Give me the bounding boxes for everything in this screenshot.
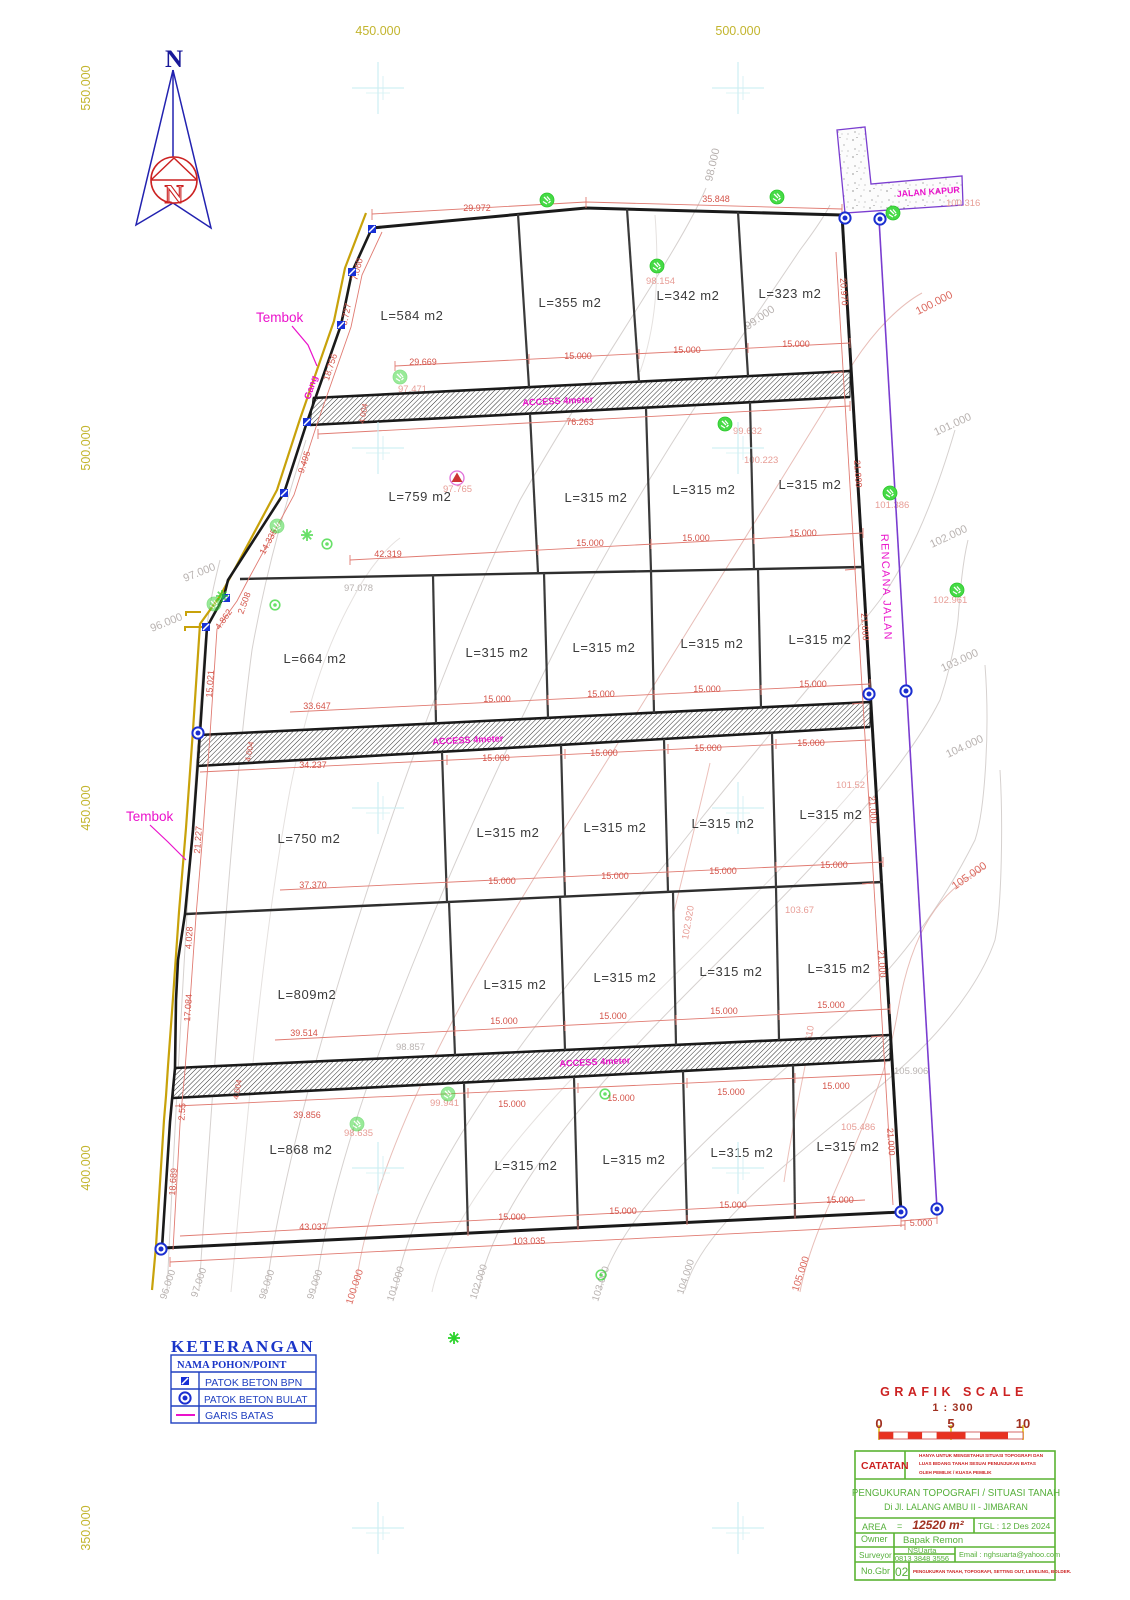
svg-text:4.028: 4.028 xyxy=(183,926,195,949)
svg-text:15.000: 15.000 xyxy=(590,748,618,758)
svg-text:550.000: 550.000 xyxy=(79,65,93,110)
svg-text:76.263: 76.263 xyxy=(566,417,594,427)
svg-text:97.078: 97.078 xyxy=(344,583,373,594)
svg-text:15.000: 15.000 xyxy=(694,743,722,753)
svg-text:L=315 m2: L=315 m2 xyxy=(584,820,647,835)
svg-text:5: 5 xyxy=(947,1416,954,1431)
svg-text:42.319: 42.319 xyxy=(374,549,402,559)
svg-text:103.67: 103.67 xyxy=(785,905,814,916)
svg-text:29.669: 29.669 xyxy=(409,357,437,367)
svg-text:PATOK BETON BPN: PATOK BETON BPN xyxy=(205,1377,302,1389)
svg-text:21.000: 21.000 xyxy=(859,613,871,641)
svg-text:15.000: 15.000 xyxy=(483,694,511,704)
svg-text:43.037: 43.037 xyxy=(299,1222,327,1232)
svg-text:15.000: 15.000 xyxy=(599,1011,627,1021)
svg-text:L=315 m2: L=315 m2 xyxy=(692,816,755,831)
svg-text:L=315 m2: L=315 m2 xyxy=(817,1139,880,1154)
svg-text:15.021: 15.021 xyxy=(204,670,216,698)
svg-text:35.848: 35.848 xyxy=(702,194,730,204)
svg-text:No.Gbr: No.Gbr xyxy=(861,1566,890,1576)
svg-text:21.000: 21.000 xyxy=(852,460,864,488)
svg-text:21.000: 21.000 xyxy=(876,950,888,978)
svg-text:L=315 m2: L=315 m2 xyxy=(495,1158,558,1173)
svg-text:15.000: 15.000 xyxy=(789,528,817,538)
svg-text:15.000: 15.000 xyxy=(601,871,629,881)
svg-text:L=323 m2: L=323 m2 xyxy=(759,286,822,301)
svg-text:CATATAN: CATATAN xyxy=(861,1460,909,1472)
svg-text:L=750 m2: L=750 m2 xyxy=(278,831,341,846)
svg-text:15.000: 15.000 xyxy=(717,1087,745,1097)
svg-text:L=315 m2: L=315 m2 xyxy=(681,636,744,651)
svg-text:15.000: 15.000 xyxy=(488,876,516,886)
svg-text:HANYA UNTUK MENGETAHUI SITUASI: HANYA UNTUK MENGETAHUI SITUASI TOPOGRAFI… xyxy=(919,1453,1044,1458)
svg-text:500.000: 500.000 xyxy=(79,425,93,470)
svg-text:21.000: 21.000 xyxy=(885,1128,897,1156)
svg-text:15.000: 15.000 xyxy=(709,866,737,876)
svg-text:Bapak Remon: Bapak Remon xyxy=(903,1535,963,1546)
svg-text:15.000: 15.000 xyxy=(609,1206,637,1216)
svg-text:15.000: 15.000 xyxy=(607,1093,635,1103)
svg-text:02: 02 xyxy=(895,1565,909,1579)
svg-text:34.237: 34.237 xyxy=(299,760,327,770)
svg-text:37.370: 37.370 xyxy=(299,880,327,890)
svg-text:L=664 m2: L=664 m2 xyxy=(284,651,347,666)
svg-text:98.857: 98.857 xyxy=(396,1042,425,1053)
svg-text:L=315 m2: L=315 m2 xyxy=(700,964,763,979)
svg-text:L=315 m2: L=315 m2 xyxy=(573,640,636,655)
svg-text:12520 m²: 12520 m² xyxy=(912,1518,964,1532)
svg-text:L=355 m2: L=355 m2 xyxy=(539,295,602,310)
svg-text:15.000: 15.000 xyxy=(682,533,710,543)
svg-text:=: = xyxy=(897,1521,902,1531)
svg-text:GRAFIK SCALE: GRAFIK SCALE xyxy=(880,1385,1028,1399)
svg-text:AREA: AREA xyxy=(862,1522,887,1532)
svg-text:15.000: 15.000 xyxy=(782,339,810,349)
svg-text:15.000: 15.000 xyxy=(826,1195,854,1205)
svg-text:15.000: 15.000 xyxy=(564,351,592,361)
svg-text:102.961: 102.961 xyxy=(933,595,967,606)
svg-text:450.000: 450.000 xyxy=(355,24,400,38)
svg-text:L=315 m2: L=315 m2 xyxy=(594,970,657,985)
svg-text:L=315 m2: L=315 m2 xyxy=(673,482,736,497)
svg-text:5.000: 5.000 xyxy=(910,1218,933,1228)
svg-text:15.000: 15.000 xyxy=(822,1081,850,1091)
svg-text:L=584 m2: L=584 m2 xyxy=(381,308,444,323)
svg-text:2.55: 2.55 xyxy=(176,1103,187,1121)
svg-text:L=759 m2: L=759 m2 xyxy=(389,489,452,504)
svg-text:PENGUKURAN TOPOGRAFI / SITUASI: PENGUKURAN TOPOGRAFI / SITUASI TANAH xyxy=(852,1488,1060,1499)
svg-text:L=315 m2: L=315 m2 xyxy=(789,632,852,647)
svg-text:105.486: 105.486 xyxy=(841,1122,875,1133)
svg-text:Owner: Owner xyxy=(861,1534,888,1544)
svg-text:101.52: 101.52 xyxy=(836,780,865,791)
svg-text:GARIS BATAS: GARIS BATAS xyxy=(205,1410,273,1422)
svg-text:20.970: 20.970 xyxy=(838,278,850,306)
svg-text:NAMA POHON/POINT: NAMA POHON/POINT xyxy=(177,1360,286,1371)
svg-text:0: 0 xyxy=(875,1416,882,1431)
svg-text:103.035: 103.035 xyxy=(513,1236,546,1246)
svg-text:500.000: 500.000 xyxy=(715,24,760,38)
svg-text:15.000: 15.000 xyxy=(719,1200,747,1210)
svg-text:105.906: 105.906 xyxy=(894,1066,928,1077)
svg-text:15.000: 15.000 xyxy=(490,1016,518,1026)
svg-text:L=868 m2: L=868 m2 xyxy=(270,1142,333,1157)
svg-text:L=315 m2: L=315 m2 xyxy=(466,645,529,660)
svg-text:100.316: 100.316 xyxy=(946,198,980,209)
svg-text:100.223: 100.223 xyxy=(744,455,778,466)
svg-text:L=315 m2: L=315 m2 xyxy=(565,490,628,505)
svg-text:17.084: 17.084 xyxy=(182,994,194,1022)
svg-text:TGL : 12 Des 2024: TGL : 12 Des 2024 xyxy=(978,1521,1051,1531)
svg-text:N: N xyxy=(165,46,183,73)
svg-text:15.000: 15.000 xyxy=(587,689,615,699)
svg-text:15.000: 15.000 xyxy=(482,753,510,763)
svg-text:KETERANGAN: KETERANGAN xyxy=(171,1337,315,1356)
svg-text:L=315 m2: L=315 m2 xyxy=(800,807,863,822)
svg-text:PATOK BETON BULAT: PATOK BETON BULAT xyxy=(204,1395,308,1406)
svg-text:15.000: 15.000 xyxy=(673,345,701,355)
svg-text:1 : 300: 1 : 300 xyxy=(932,1402,973,1414)
svg-text:L=315 m2: L=315 m2 xyxy=(484,977,547,992)
svg-text:N: N xyxy=(165,180,184,209)
svg-text:21.000: 21.000 xyxy=(867,796,879,824)
svg-text:39.856: 39.856 xyxy=(293,1110,321,1120)
svg-text:15.000: 15.000 xyxy=(797,738,825,748)
svg-text:0813 3848 3556: 0813 3848 3556 xyxy=(895,1554,949,1563)
svg-text:15.000: 15.000 xyxy=(576,538,604,548)
svg-text:L=315 m2: L=315 m2 xyxy=(779,477,842,492)
svg-text:350.000: 350.000 xyxy=(79,1505,93,1550)
svg-text:PENGUKURAN TANAH, TOPOGRAFI, S: PENGUKURAN TANAH, TOPOGRAFI, SETTING OUT… xyxy=(913,1569,1071,1574)
svg-text:L=315 m2: L=315 m2 xyxy=(808,961,871,976)
svg-text:33.647: 33.647 xyxy=(303,701,331,711)
svg-text:15.000: 15.000 xyxy=(498,1212,526,1222)
svg-text:Email : nghsuarta@yahoo.com: Email : nghsuarta@yahoo.com xyxy=(959,1550,1060,1559)
svg-text:OLEH PEMILIK / KUASA PEMILIK: OLEH PEMILIK / KUASA PEMILIK xyxy=(919,1470,992,1475)
svg-text:15.000: 15.000 xyxy=(498,1099,526,1109)
svg-text:L=315 m2: L=315 m2 xyxy=(603,1152,666,1167)
svg-text:98.154: 98.154 xyxy=(646,276,675,287)
svg-text:400.000: 400.000 xyxy=(79,1145,93,1190)
svg-text:L=315 m2: L=315 m2 xyxy=(477,825,540,840)
svg-text:15.000: 15.000 xyxy=(693,684,721,694)
svg-text:L=809m2: L=809m2 xyxy=(278,987,337,1002)
svg-text:Surveyor: Surveyor xyxy=(859,1551,892,1560)
svg-text:L=315 m2: L=315 m2 xyxy=(711,1145,774,1160)
svg-text:15.000: 15.000 xyxy=(799,679,827,689)
svg-text:10: 10 xyxy=(1016,1416,1030,1431)
svg-text:LUAS BIDANG TANAH SESUAI PENUN: LUAS BIDANG TANAH SESUAI PENUNJUKAN BATA… xyxy=(919,1461,1036,1466)
svg-text:Di Jl. LALANG AMBU II - JIMBAR: Di Jl. LALANG AMBU II - JIMBARAN xyxy=(884,1502,1028,1512)
svg-text:21.227: 21.227 xyxy=(192,826,204,854)
svg-text:L=342 m2: L=342 m2 xyxy=(657,288,720,303)
svg-text:29.972: 29.972 xyxy=(463,203,491,213)
svg-text:101.386: 101.386 xyxy=(875,500,909,511)
svg-text:15.000: 15.000 xyxy=(820,860,848,870)
svg-text:15.000: 15.000 xyxy=(817,1000,845,1010)
svg-text:15.000: 15.000 xyxy=(710,1006,738,1016)
svg-text:450.000: 450.000 xyxy=(79,785,93,830)
svg-text:Tembok: Tembok xyxy=(126,809,174,824)
svg-text:39.514: 39.514 xyxy=(290,1028,318,1038)
svg-text:Tembok: Tembok xyxy=(256,310,304,325)
svg-text:18.689: 18.689 xyxy=(167,1168,179,1196)
